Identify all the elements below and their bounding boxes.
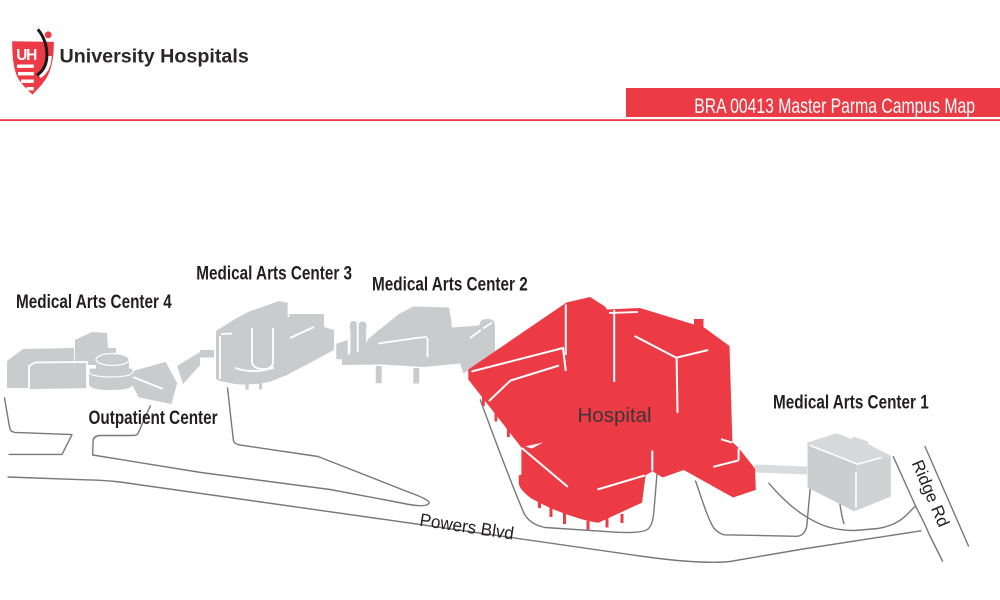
svg-text:Medical Arts Center 4: Medical Arts Center 4 [16, 291, 172, 313]
svg-text:BRA 00413 Master Parma Campus: BRA 00413 Master Parma Campus Map [694, 94, 975, 118]
svg-text:Medical Arts Center 2: Medical Arts Center 2 [372, 273, 528, 295]
svg-text:Medical Arts Center 1: Medical Arts Center 1 [773, 391, 929, 413]
svg-text:Outpatient Center: Outpatient Center [89, 406, 218, 428]
svg-text:Powers Blvd: Powers Blvd [418, 509, 515, 543]
svg-text:Hospital: Hospital [578, 404, 652, 427]
svg-text:UH: UH [16, 47, 37, 64]
svg-text:Medical Arts Center 3: Medical Arts Center 3 [196, 262, 352, 284]
svg-text:University Hospitals: University Hospitals [60, 45, 249, 67]
